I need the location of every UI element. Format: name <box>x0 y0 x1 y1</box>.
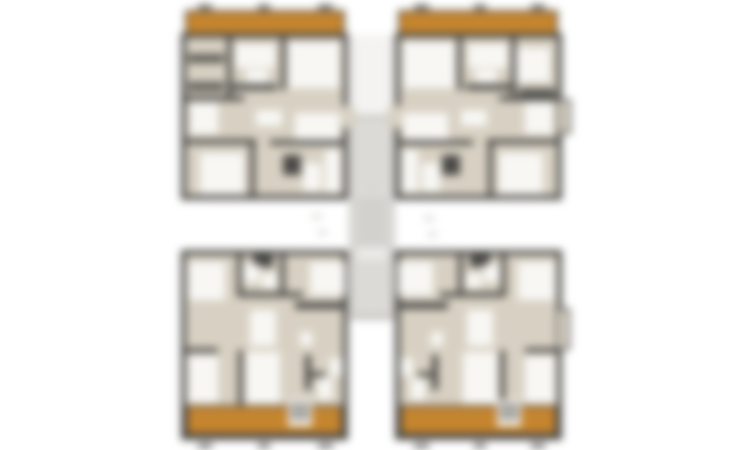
room-area <box>400 358 413 376</box>
dimension-tick <box>531 5 545 9</box>
wall-segment <box>311 372 325 377</box>
wall-segment <box>418 372 432 377</box>
furniture <box>188 54 224 63</box>
room-area <box>468 44 508 68</box>
wall-segment <box>500 350 505 405</box>
wall-segment <box>457 38 462 90</box>
step-tread <box>290 404 310 407</box>
wall-segment <box>398 302 448 309</box>
floorplan-canvas <box>0 0 750 450</box>
faint-annotation <box>428 232 437 237</box>
bay-window <box>557 99 571 134</box>
stair-tread <box>358 208 386 211</box>
dimension-tick <box>474 444 486 448</box>
room-area <box>467 310 493 346</box>
wall-segment <box>488 144 493 195</box>
stair-landing <box>357 248 387 260</box>
faint-annotation <box>318 230 327 235</box>
room-area <box>246 352 280 404</box>
wall-segment <box>237 292 303 297</box>
room-area <box>499 153 543 194</box>
floorplan-screenshot <box>0 0 750 450</box>
faint-annotation <box>424 216 434 221</box>
room-area <box>518 262 555 300</box>
wall-segment <box>270 140 343 145</box>
dimension-tick <box>258 444 270 448</box>
dimension-tick <box>414 444 429 448</box>
core-edge <box>352 316 392 319</box>
wall-segment <box>238 350 243 405</box>
step-tread <box>290 416 310 419</box>
core-edge <box>351 118 353 316</box>
door-opening <box>343 106 355 128</box>
wall-segment <box>280 255 285 295</box>
wall-segment <box>186 348 218 353</box>
dimension-tick <box>198 444 212 448</box>
dimension-tick <box>198 5 212 9</box>
wall-segment <box>458 255 463 295</box>
wall-segment <box>442 155 460 175</box>
corridor-wall-line <box>390 35 392 115</box>
room-area <box>310 262 345 295</box>
stair-tread <box>358 232 386 235</box>
room-area <box>235 44 275 68</box>
room-area <box>484 264 500 282</box>
dimension-tick <box>258 5 270 9</box>
faint-annotation <box>366 184 378 189</box>
room-area <box>325 150 341 192</box>
room-area <box>525 102 553 134</box>
room-area <box>411 378 425 400</box>
wall-segment <box>250 144 255 195</box>
room-area <box>398 262 433 295</box>
bay-window <box>556 308 570 350</box>
room-area <box>422 163 440 191</box>
wall-segment <box>283 155 301 175</box>
step-tread <box>499 416 519 419</box>
wall-segment <box>186 96 244 101</box>
stair-tread <box>358 216 386 219</box>
room-area <box>200 153 244 194</box>
room-area <box>262 273 277 288</box>
core-edge <box>391 118 393 316</box>
wall-segment <box>525 348 557 353</box>
balcony-bottom-left <box>186 405 343 435</box>
balcony-top-right <box>398 10 558 35</box>
room-area <box>188 262 225 300</box>
corridor-upper <box>350 35 394 115</box>
wall-segment <box>499 96 557 101</box>
room-area <box>463 352 497 404</box>
door-opening <box>388 106 400 128</box>
step-tread <box>499 410 519 413</box>
balcony-top-left <box>185 10 345 35</box>
dimension-tick <box>318 444 333 448</box>
room-area <box>190 102 218 134</box>
room-area <box>250 310 276 346</box>
wall-segment <box>281 38 286 90</box>
room-area <box>330 358 343 376</box>
balcony-bottom-right <box>400 405 557 435</box>
room-area <box>466 273 481 288</box>
stair-tread <box>358 224 386 227</box>
dimension-tick <box>474 5 486 9</box>
furniture <box>188 82 224 91</box>
room-area <box>303 163 321 191</box>
room-area <box>256 110 282 126</box>
wall-segment <box>501 255 506 295</box>
wall-segment <box>466 84 516 90</box>
room-area <box>461 110 487 126</box>
room-area <box>288 42 340 88</box>
wall-segment <box>487 139 557 144</box>
wall-segment <box>440 292 506 297</box>
wall-segment <box>186 139 256 144</box>
wall-segment <box>295 302 345 309</box>
corridor-wall-line <box>352 35 354 115</box>
room-area <box>431 332 443 346</box>
room-area <box>188 355 218 403</box>
step-tread <box>290 410 310 413</box>
dimension-tick <box>318 5 333 9</box>
wall-segment <box>237 255 242 295</box>
room-area <box>402 150 418 192</box>
room-area <box>246 70 268 83</box>
wall-segment <box>227 84 277 90</box>
room-area <box>403 42 455 88</box>
step-tread <box>499 404 519 407</box>
faint-annotation <box>312 214 322 219</box>
room-area <box>475 70 497 83</box>
room-area <box>318 378 332 400</box>
furniture <box>519 88 555 96</box>
stair-tread <box>358 200 386 203</box>
wall-segment <box>432 355 438 390</box>
room-area <box>525 355 555 403</box>
wall-segment <box>400 140 473 145</box>
room-area <box>243 264 259 282</box>
core-edge <box>352 115 392 118</box>
stair-tread <box>358 240 386 243</box>
room-area <box>300 332 312 346</box>
room-area <box>516 48 550 82</box>
dimension-tick <box>414 5 429 9</box>
dimension-tick <box>531 444 545 448</box>
